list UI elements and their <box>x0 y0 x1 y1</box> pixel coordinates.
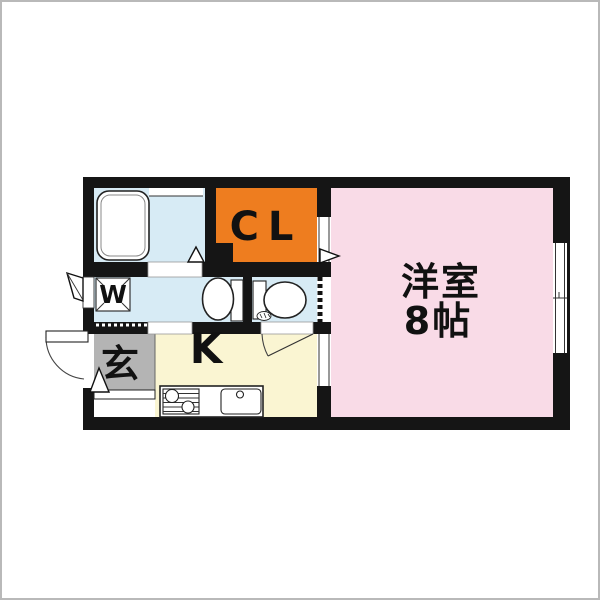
entrance-label: 玄 <box>101 342 139 386</box>
toilet-doorway <box>261 322 313 334</box>
sliding-window <box>553 243 567 353</box>
laundry-label: W <box>99 280 127 309</box>
western-room-label-line2: 8帖 <box>404 299 472 343</box>
floor-plan-svg: 洋室 8帖 CL K 玄 W <box>0 0 600 600</box>
entrance-door-swing <box>46 331 88 379</box>
toilet <box>253 281 306 321</box>
kitchen-sink <box>221 389 261 414</box>
washroom-doorway <box>148 322 192 334</box>
wash-basin <box>203 278 234 320</box>
closet-label: CL <box>230 204 303 250</box>
kitchen-counter <box>160 386 263 417</box>
side-window-flap <box>67 273 83 301</box>
bathtub <box>97 191 149 260</box>
floor-plan-canvas: 洋室 8帖 CL K 玄 W <box>0 0 600 600</box>
bathroom-doorway <box>148 262 202 277</box>
stove <box>163 389 199 414</box>
side-window-opening <box>83 277 94 308</box>
kitchen-label: K <box>190 324 224 373</box>
western-room-label-line1: 洋室 <box>401 260 481 304</box>
bath-counter <box>149 188 203 196</box>
